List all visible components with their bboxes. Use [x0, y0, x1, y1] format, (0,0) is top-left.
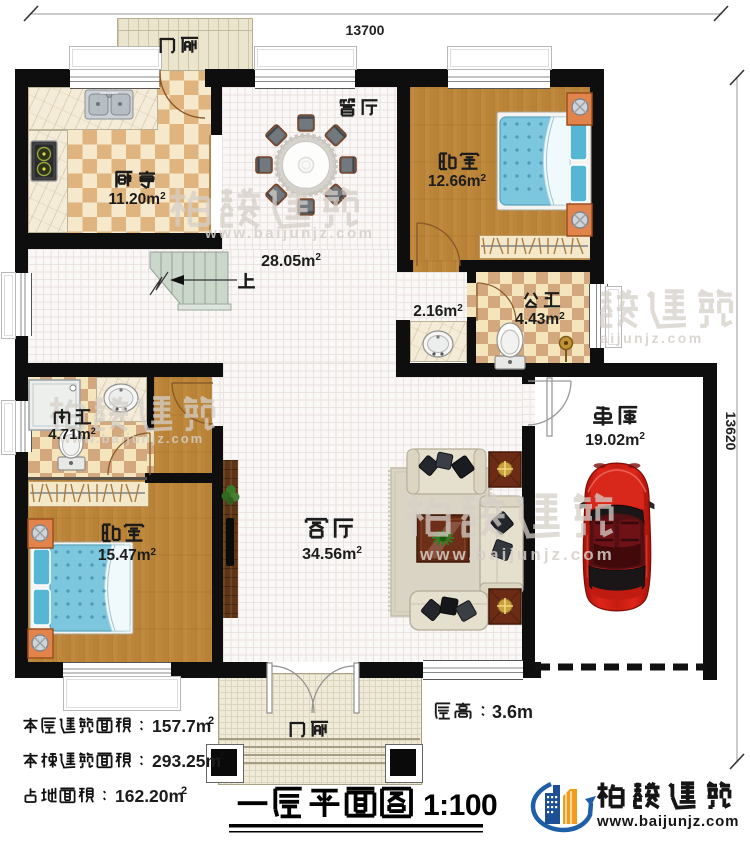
svg-text:28.05m2: 28.05m2: [261, 252, 321, 270]
svg-text:15.47m2: 15.47m2: [98, 547, 157, 564]
svg-text:4.71m2: 4.71m2: [48, 426, 96, 443]
svg-text:157.7m: 157.7m: [152, 716, 211, 736]
svg-text:34.56m2: 34.56m2: [302, 545, 362, 563]
svg-text:1:100: 1:100: [423, 789, 497, 822]
svg-text:3.6m: 3.6m: [492, 702, 533, 722]
svg-text:2.16m2: 2.16m2: [413, 303, 463, 320]
svg-text:2: 2: [218, 750, 224, 762]
svg-text:162.20m: 162.20m: [115, 786, 184, 806]
svg-text:11.20m2: 11.20m2: [108, 191, 166, 208]
svg-text:19.02m2: 19.02m2: [585, 431, 645, 449]
svg-text:4.43m2: 4.43m2: [515, 311, 565, 328]
svg-text:2: 2: [181, 785, 187, 797]
svg-text:2: 2: [208, 715, 214, 727]
svg-text:www.baijunjz.com: www.baijunjz.com: [596, 813, 739, 830]
svg-text:12.66m2: 12.66m2: [428, 173, 487, 190]
svg-text:293.25m: 293.25m: [152, 751, 221, 771]
